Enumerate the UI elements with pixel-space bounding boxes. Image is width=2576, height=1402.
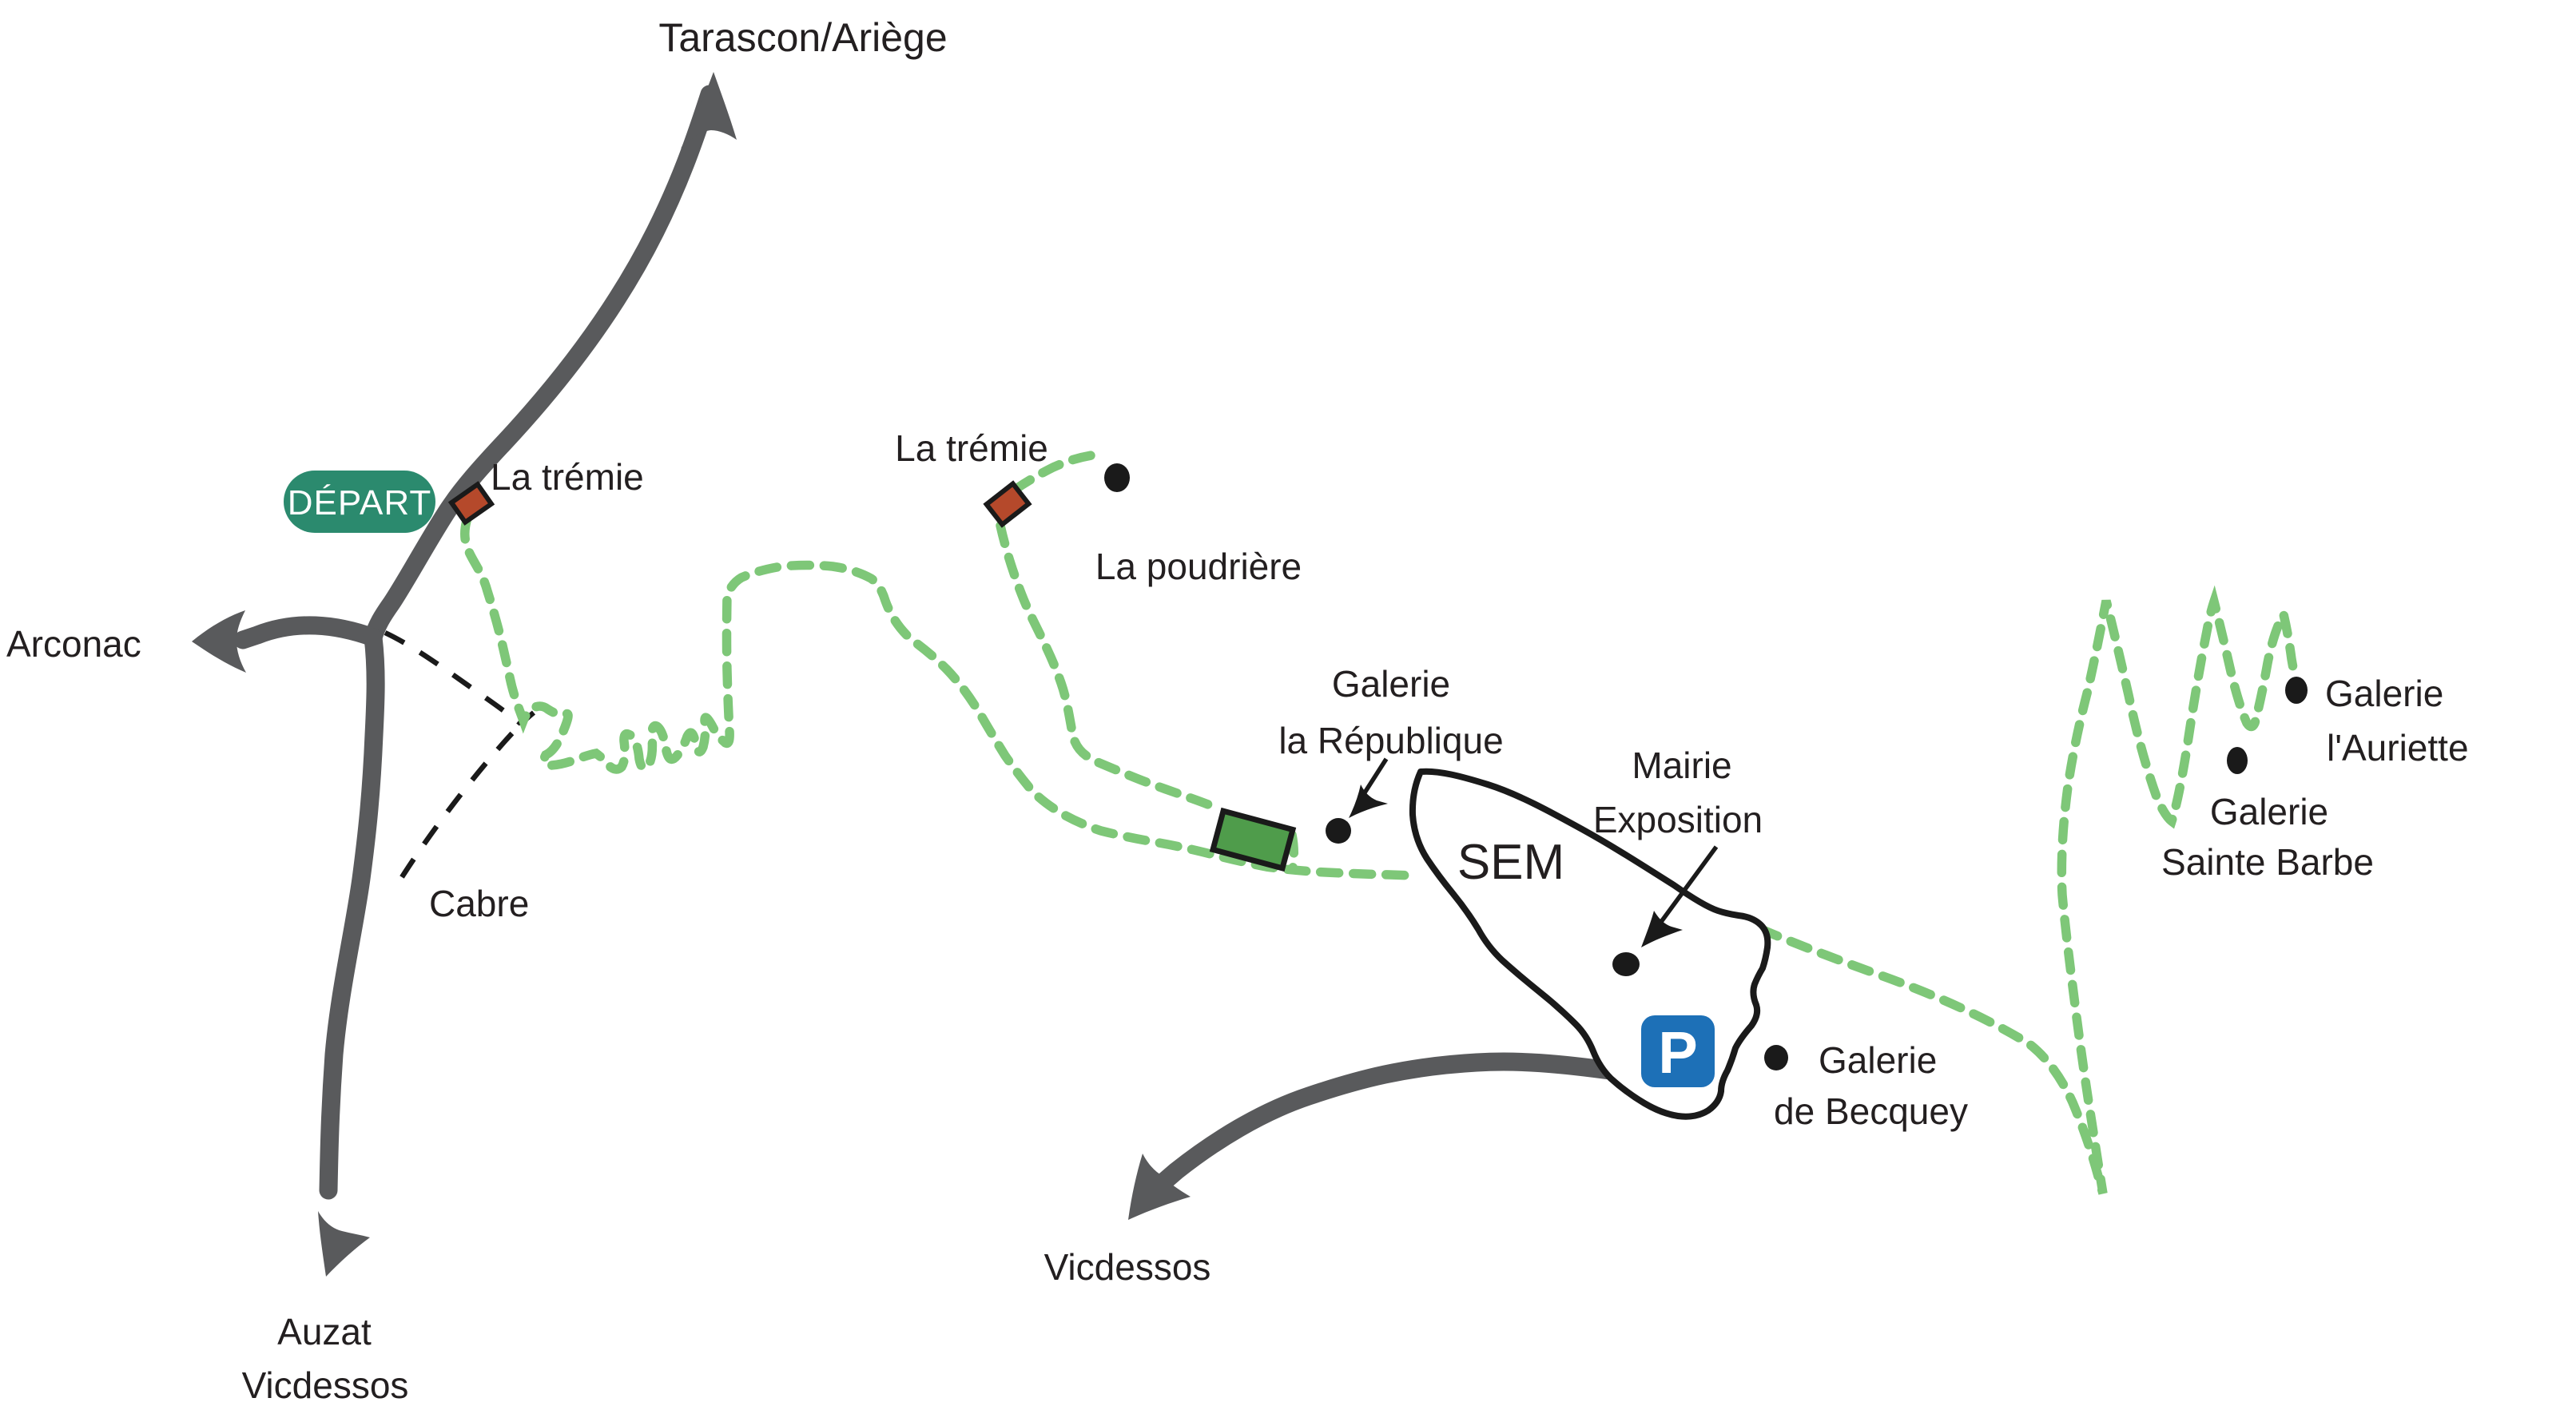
label-exposition: Exposition (1593, 799, 1763, 840)
republique-dot (1326, 818, 1351, 844)
poudriere-dot (1104, 463, 1130, 492)
auriette-dot (2285, 677, 2308, 704)
dashed-link-lower (402, 713, 534, 877)
label-auzat-vicdessos: Vicdessos (242, 1364, 409, 1402)
parking-letter: P (1658, 1019, 1697, 1086)
label-mairie: Mairie (1632, 745, 1731, 786)
label-galerie-republique-1: Galerie (1332, 663, 1450, 705)
label-auriette-2: l'Auriette (2327, 727, 2469, 769)
label-becquey-1: Galerie (1819, 1039, 1937, 1081)
becquey-dot (1764, 1045, 1788, 1070)
road-network (243, 94, 1616, 1190)
sainte-barbe-dot (2227, 747, 2248, 774)
road-arrowheads (192, 72, 1191, 1277)
arrowhead-auzat (318, 1211, 370, 1277)
label-sainte-barbe-1: Galerie (2210, 791, 2328, 832)
depart-badge: DÉPART (284, 471, 435, 533)
mairie-dot (1612, 952, 1640, 976)
label-auzat: Auzat (277, 1311, 372, 1352)
depart-badge-label: DÉPART (288, 483, 431, 522)
trail-map: P DÉPART Tarascon/Ariège Arconac Cabre A… (0, 0, 2576, 1402)
label-becquey-2: de Becquey (1774, 1090, 1968, 1132)
shortcut-dashed-lines (385, 633, 534, 877)
label-tremie2: La trémie (895, 427, 1048, 469)
label-vicdessos-south: Vicdessos (1044, 1246, 1211, 1288)
label-arconac: Arconac (6, 623, 141, 665)
label-sainte-barbe-2: Sainte Barbe (2161, 841, 2374, 883)
label-galerie-republique-2: la République (1278, 720, 1503, 761)
label-auriette-1: Galerie (2325, 673, 2443, 714)
road-arconac (243, 626, 373, 640)
road-auzat (328, 637, 376, 1190)
label-tremie1: La trémie (491, 456, 644, 498)
road-tarascon (373, 94, 710, 637)
label-sem: SEM (1457, 835, 1564, 890)
parking-icon: P (1641, 1015, 1715, 1087)
arrowhead-tarascon (681, 72, 737, 149)
label-cabre: Cabre (429, 883, 529, 924)
label-poudriere: La poudrière (1095, 546, 1302, 587)
label-tarascon: Tarascon/Ariège (658, 15, 947, 60)
road-vicdessos (1159, 1062, 1616, 1186)
